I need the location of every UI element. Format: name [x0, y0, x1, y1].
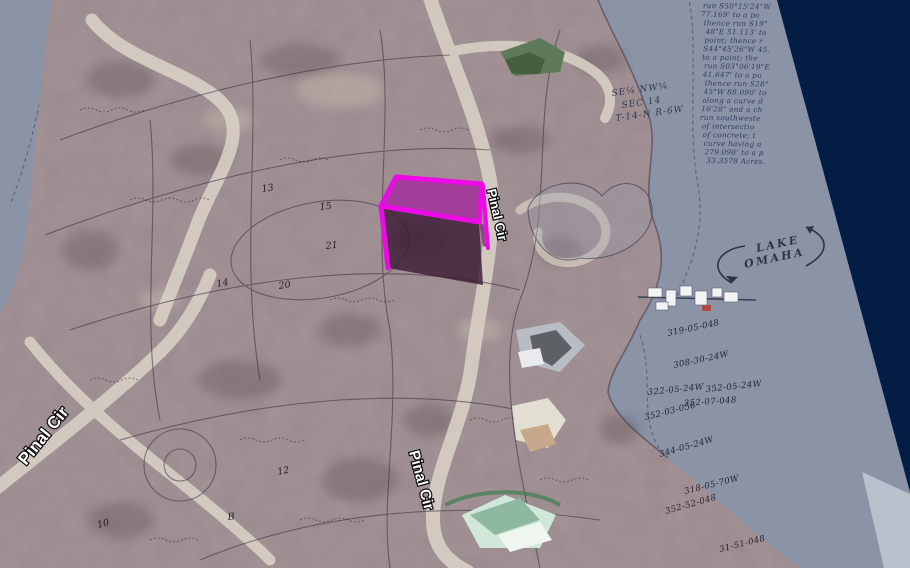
red-boat: [702, 305, 711, 311]
lot-number: 21: [324, 240, 338, 252]
lot-number: B: [226, 511, 235, 523]
lot-number: 15: [319, 201, 332, 213]
selected-parcel-3d-box[interactable]: [381, 177, 489, 285]
lot-number: 14: [216, 277, 230, 290]
survey-description-text: run S50°15'24"W 77.169' to a po thence r…: [698, 1, 771, 166]
lot-number: 13: [261, 182, 275, 195]
lot-number: 20: [277, 279, 291, 292]
map-scene[interactable]: 13 15 21 14 20 12 10 B 319-05-048 308-30…: [0, 0, 910, 568]
map-3d-viewport[interactable]: 13 15 21 14 20 12 10 B 319-05-048 308-30…: [0, 0, 910, 568]
survey-text-line: 33.3578 Acres.: [706, 156, 765, 166]
